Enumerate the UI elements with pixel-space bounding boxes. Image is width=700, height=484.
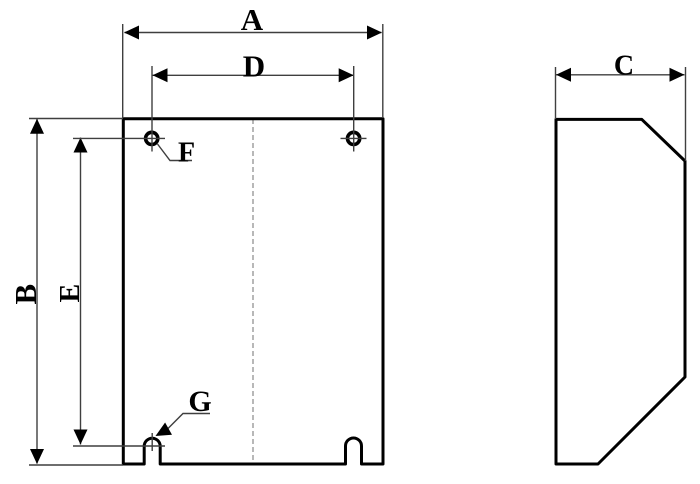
svg-text:E: E	[55, 284, 86, 303]
svg-text:G: G	[188, 385, 211, 418]
svg-text:C: C	[614, 51, 634, 82]
svg-text:F: F	[178, 138, 195, 169]
svg-text:A: A	[241, 2, 264, 37]
svg-text:B: B	[8, 284, 43, 305]
svg-text:D: D	[243, 49, 265, 84]
